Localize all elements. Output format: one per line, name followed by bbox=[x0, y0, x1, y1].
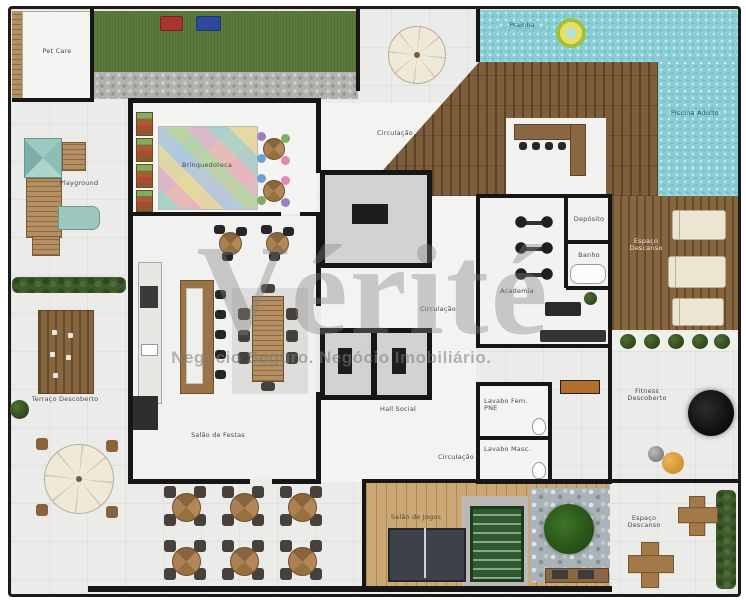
wall-segment bbox=[12, 98, 94, 102]
bench-cushion bbox=[552, 570, 568, 579]
kids-chair bbox=[257, 196, 266, 205]
kitchen-counter bbox=[138, 262, 162, 404]
outdoor-fitness-label: Fitness Descoberto bbox=[620, 388, 674, 403]
wall-segment bbox=[356, 9, 360, 91]
pet-care-label: Pet Care bbox=[32, 48, 82, 55]
pool-bar-counter bbox=[570, 124, 586, 176]
weight-rack bbox=[540, 330, 606, 342]
wall-segment bbox=[362, 479, 366, 591]
wall-segment bbox=[88, 586, 366, 592]
playground-label: Playground bbox=[48, 180, 110, 187]
wall-segment bbox=[612, 479, 738, 483]
wall-segment bbox=[128, 479, 250, 484]
bar-stool bbox=[519, 142, 527, 150]
gravel-strip bbox=[94, 72, 358, 99]
bench-cushion bbox=[578, 570, 594, 579]
dining-chair bbox=[261, 382, 275, 391]
outdoor-table bbox=[230, 547, 259, 576]
pool-right-arm bbox=[658, 60, 738, 196]
brinquedoteca-label: Brinquedoteca bbox=[168, 162, 246, 169]
toy-shelf bbox=[136, 190, 153, 212]
bar-stool bbox=[532, 142, 540, 150]
sun-lounger bbox=[668, 256, 726, 288]
kids-chair bbox=[257, 174, 266, 183]
wall-segment bbox=[566, 286, 610, 290]
deck-item bbox=[50, 352, 55, 357]
kids-chair bbox=[257, 132, 266, 141]
playhouse-roof bbox=[24, 138, 62, 178]
patio-chair bbox=[36, 504, 48, 516]
plunge-tub bbox=[688, 390, 734, 436]
deck-item bbox=[52, 330, 57, 335]
storage-label: Depósito bbox=[570, 216, 608, 223]
lawn bbox=[94, 11, 358, 72]
watermark-brand: Vérité bbox=[196, 226, 549, 354]
rest-area-label: Espaço Descanso bbox=[620, 515, 668, 530]
patio-chair bbox=[106, 440, 118, 452]
bar-stool bbox=[215, 370, 226, 379]
wall-segment bbox=[478, 436, 550, 440]
sun-lounger bbox=[672, 210, 726, 240]
bar-stool bbox=[545, 142, 553, 150]
playground-base bbox=[32, 236, 60, 256]
kids-chair bbox=[281, 198, 290, 207]
picnic-table bbox=[678, 496, 716, 534]
parasol bbox=[44, 444, 114, 514]
service-sign bbox=[560, 380, 600, 394]
playground-platform bbox=[62, 142, 86, 171]
terrace-deck bbox=[38, 310, 94, 394]
kids-chair bbox=[281, 176, 290, 185]
outdoor-table bbox=[172, 547, 201, 576]
parasol-pole bbox=[414, 52, 420, 58]
courtyard-tree bbox=[544, 504, 594, 554]
bathtub bbox=[570, 264, 606, 284]
weight-bench bbox=[545, 302, 581, 316]
wall-segment bbox=[133, 212, 281, 216]
cooktop bbox=[140, 286, 158, 308]
toy-shelf bbox=[136, 112, 153, 136]
pool-parasol bbox=[388, 26, 446, 84]
wall-segment bbox=[566, 240, 610, 244]
restroom-masc-label: Lavabo Masc. bbox=[484, 446, 534, 453]
toy-shelf bbox=[136, 138, 153, 162]
outdoor-table bbox=[288, 547, 317, 576]
red-mat bbox=[160, 16, 183, 31]
blue-mat bbox=[196, 16, 221, 31]
wall-segment bbox=[90, 9, 94, 102]
gym-plant bbox=[584, 292, 597, 305]
circulation-north-label: Circulação bbox=[370, 130, 420, 137]
plant bbox=[714, 334, 730, 349]
hall-social-label: Hall Social bbox=[372, 406, 424, 413]
exercise-ball-orange bbox=[662, 452, 684, 474]
kids-chair bbox=[281, 156, 290, 165]
deck-item bbox=[68, 333, 73, 338]
plant bbox=[10, 400, 29, 419]
plant bbox=[668, 334, 684, 349]
prainha-label: Prainha bbox=[498, 22, 546, 29]
wall-segment bbox=[476, 9, 480, 62]
wall-segment bbox=[128, 98, 320, 103]
patio-chair bbox=[106, 506, 118, 518]
ping-pong-table bbox=[388, 528, 466, 582]
wall-segment bbox=[316, 98, 321, 173]
wall-segment bbox=[476, 382, 552, 386]
plant bbox=[692, 334, 708, 349]
wall-segment bbox=[548, 382, 552, 484]
wall-segment bbox=[476, 480, 612, 484]
watermark-tagline: Negócio Seguro. Negócio Imobiliário. bbox=[171, 348, 491, 368]
wall-segment bbox=[608, 194, 612, 484]
wall-segment bbox=[476, 194, 612, 198]
kids-chair bbox=[257, 154, 266, 163]
toilet bbox=[532, 462, 546, 479]
foosball-table bbox=[470, 506, 524, 582]
plant bbox=[644, 334, 660, 349]
picnic-table bbox=[628, 542, 672, 586]
deck-item bbox=[53, 373, 58, 378]
sun-lounger bbox=[672, 298, 724, 326]
outdoor-table bbox=[172, 493, 201, 522]
hedge bbox=[716, 490, 736, 589]
slide bbox=[58, 206, 100, 230]
fridge bbox=[133, 396, 158, 430]
kids-chair bbox=[281, 134, 290, 143]
ping-pong-net bbox=[424, 528, 426, 578]
plant bbox=[620, 334, 636, 349]
outdoor-table bbox=[230, 493, 259, 522]
sink bbox=[141, 344, 158, 356]
pet-care-room bbox=[22, 11, 94, 102]
bath-label: Banho bbox=[572, 252, 606, 259]
circulation-south-label: Circulação bbox=[430, 454, 482, 461]
terrace-label: Terraço Descoberto bbox=[28, 396, 102, 403]
hedge bbox=[12, 277, 126, 293]
restroom-fem-label: Lavabo Fem. PNE bbox=[484, 398, 534, 413]
deck-item bbox=[66, 355, 71, 360]
wall-segment bbox=[364, 586, 612, 592]
parasol-pole bbox=[76, 476, 82, 482]
bar-stool bbox=[558, 142, 566, 150]
floor-plan: Pet Care Playground Terraço Descoberto B… bbox=[0, 0, 746, 600]
pet-care-deck-strip bbox=[12, 11, 22, 100]
rest-deck-label: Espaço Descanso bbox=[624, 238, 668, 253]
pool-float-icon bbox=[556, 18, 586, 48]
wall-segment bbox=[316, 392, 321, 483]
games-room-label: Salão de Jogos bbox=[386, 514, 446, 521]
patio-chair bbox=[36, 438, 48, 450]
adult-pool-label: Piscina Adulto bbox=[668, 110, 722, 117]
wall-segment bbox=[272, 479, 321, 484]
wall-segment bbox=[476, 382, 480, 484]
pool bbox=[479, 10, 738, 62]
outdoor-table bbox=[288, 493, 317, 522]
toilet bbox=[532, 418, 546, 435]
toy-shelf bbox=[136, 164, 153, 188]
party-hall-label: Salão de Festas bbox=[178, 432, 258, 439]
